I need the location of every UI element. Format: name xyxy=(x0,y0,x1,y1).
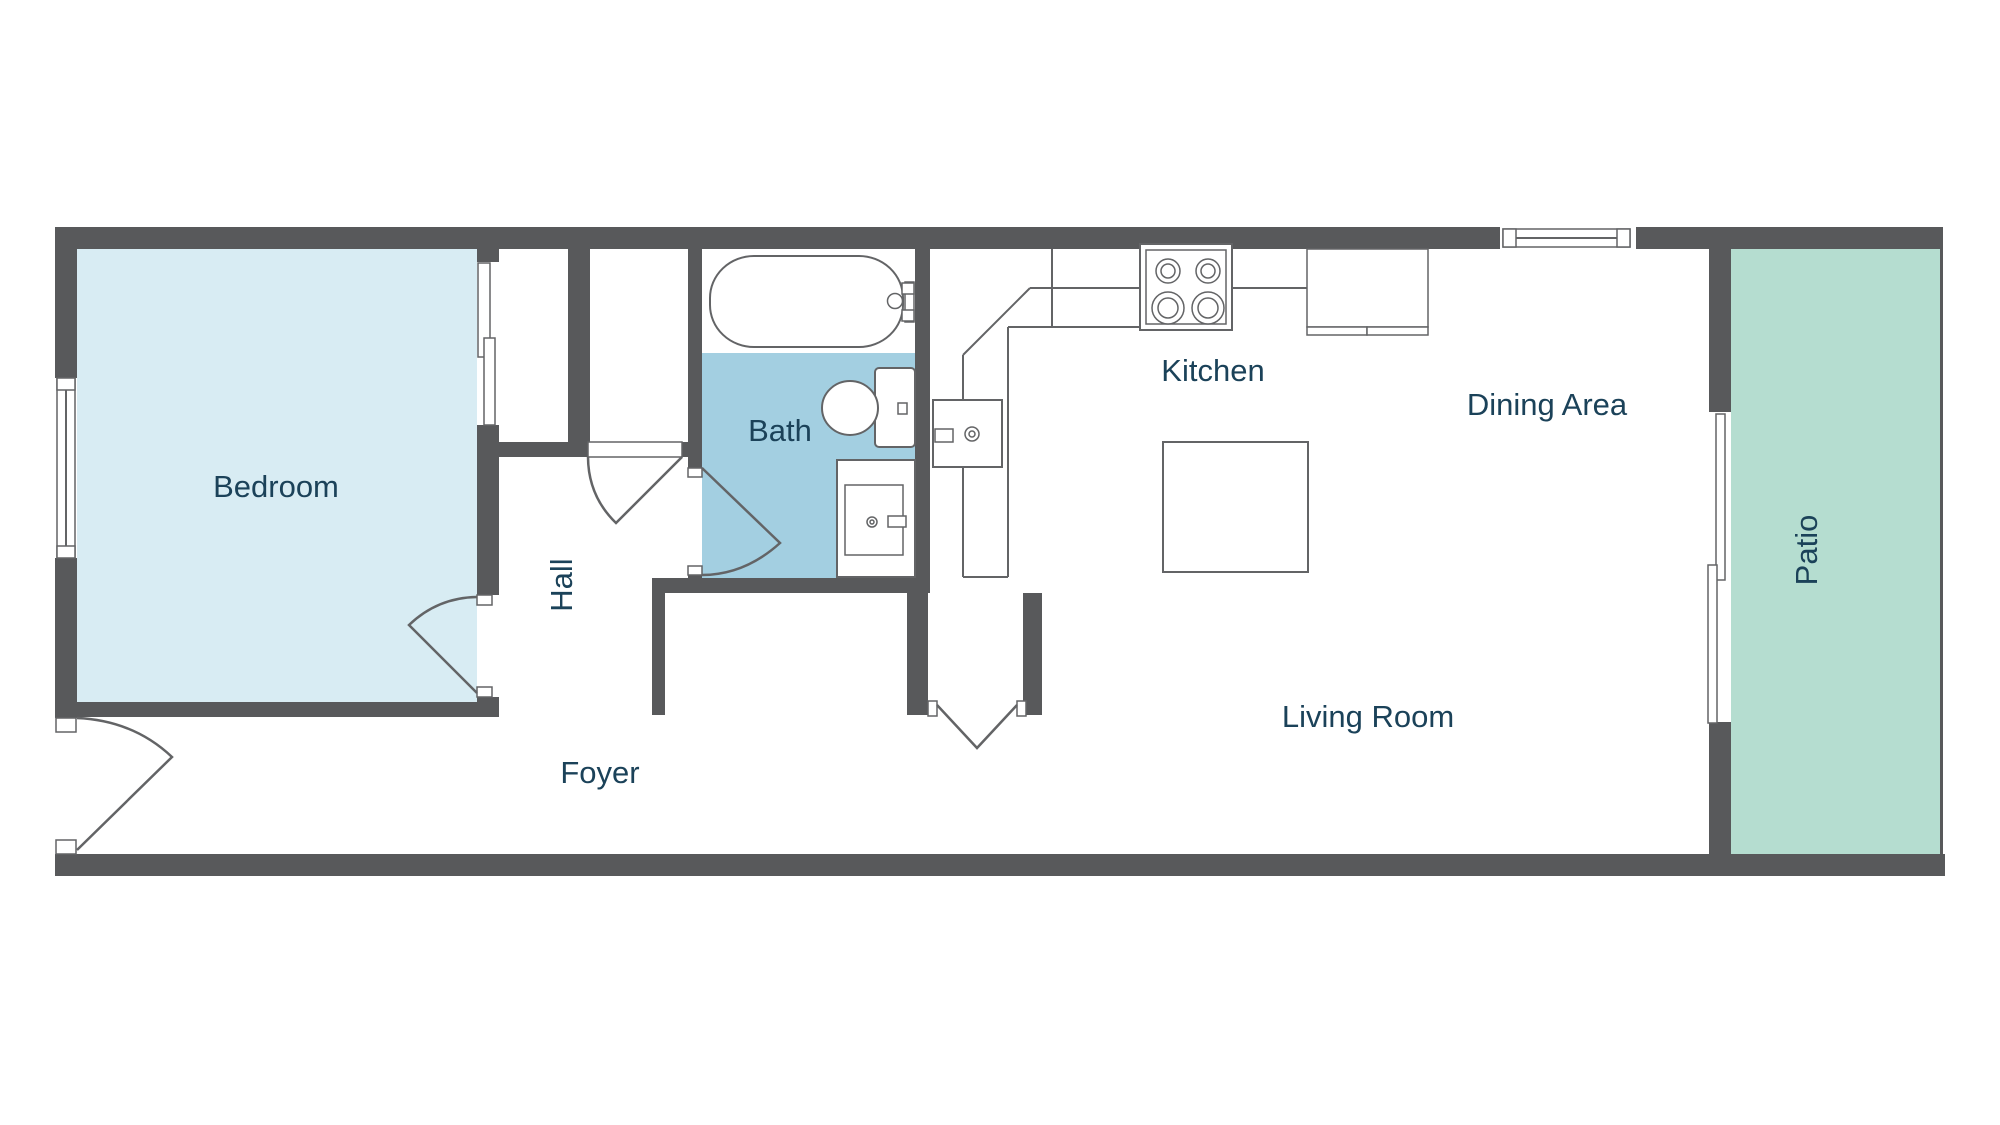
shower xyxy=(837,460,915,577)
wall-bedroom-right-top xyxy=(477,249,499,262)
wall-left-upper xyxy=(55,249,77,378)
wall-entry-closet-left xyxy=(907,593,928,715)
refrigerator xyxy=(1307,249,1428,335)
label-bath: Bath xyxy=(748,413,812,448)
patio-right-edge xyxy=(1940,249,1943,854)
bathtub xyxy=(710,256,914,347)
wall-entry-closet-right xyxy=(1023,593,1042,715)
wall-foyer-right xyxy=(652,593,665,715)
foyer-closet-bifold-door xyxy=(928,701,1026,748)
wall-bath-right xyxy=(915,249,930,593)
dining-window xyxy=(1500,227,1636,249)
floor-plan-svg: Bedroom Hall Bath Foyer Kitchen Dining A… xyxy=(0,0,2000,1125)
bedroom-window xyxy=(55,378,77,558)
wall-bedroom-bottom xyxy=(77,702,499,717)
wall-bedroom-right-bottom xyxy=(477,697,499,717)
label-living: Living Room xyxy=(1282,699,1454,734)
wall-top xyxy=(55,227,1943,249)
label-kitchen: Kitchen xyxy=(1161,353,1264,388)
patio-sliding-door xyxy=(1708,412,1731,723)
wall-bottom xyxy=(55,854,1945,876)
patio-floor xyxy=(1731,249,1940,854)
label-bedroom: Bedroom xyxy=(213,469,339,504)
wall-patio-lower xyxy=(1709,722,1731,854)
wall-left-lower xyxy=(55,558,77,718)
wall-bath-left-upper xyxy=(688,249,702,468)
bedroom-closet-slider xyxy=(477,262,499,425)
kitchen-island xyxy=(1163,442,1308,572)
hall-closet-door xyxy=(588,442,682,523)
wall-patio-upper xyxy=(1709,249,1731,412)
wall-bath-bottom xyxy=(652,578,928,593)
label-patio: Patio xyxy=(1789,515,1824,586)
wall-closet-divider xyxy=(568,249,590,457)
wall-hall-top-left xyxy=(477,442,588,457)
label-foyer: Foyer xyxy=(560,755,639,790)
kitchen-sink xyxy=(933,400,1002,467)
entry-door xyxy=(56,718,172,854)
tub-faucet-icon xyxy=(888,294,903,309)
floor-plan-page: Bedroom Hall Bath Foyer Kitchen Dining A… xyxy=(0,0,2000,1125)
label-dining: Dining Area xyxy=(1467,387,1628,422)
stove xyxy=(1140,244,1232,330)
label-hall: Hall xyxy=(544,558,579,611)
